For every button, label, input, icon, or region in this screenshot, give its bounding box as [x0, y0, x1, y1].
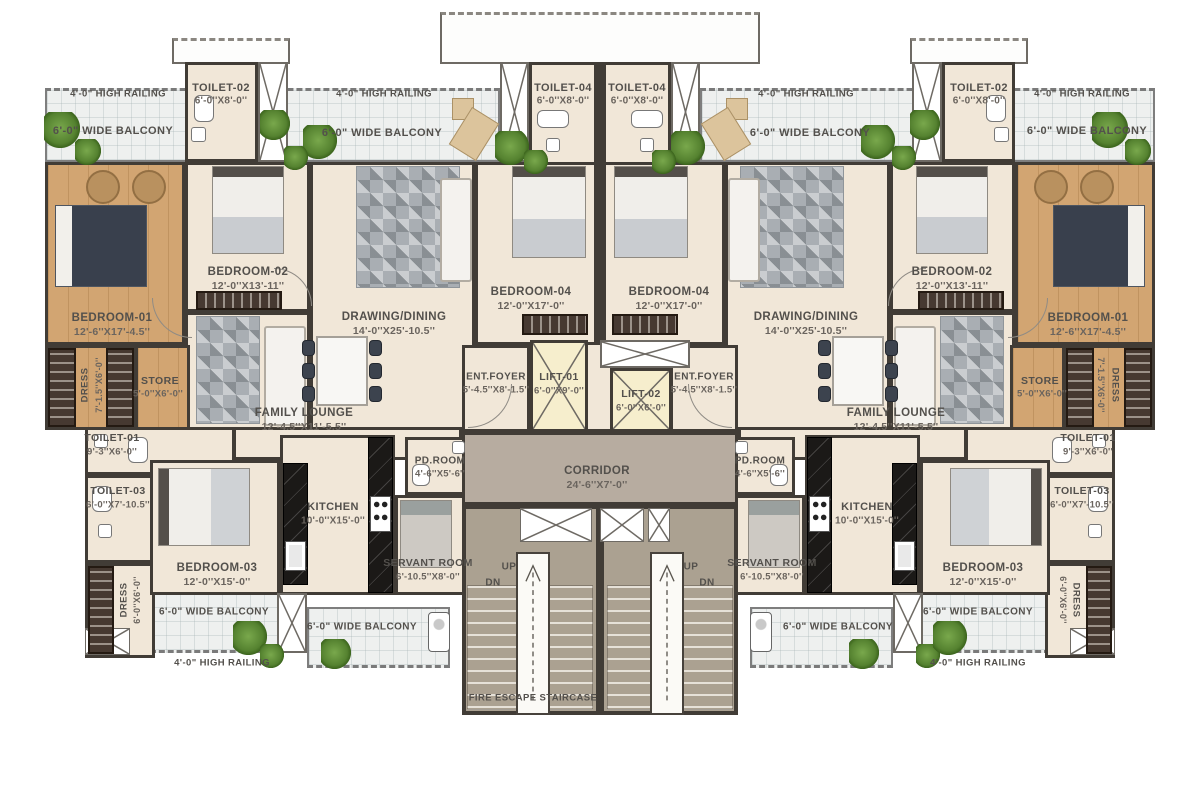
floor-plan: 4'-0" HIGH RAILING6'-0" WIDE BALCONY4'-0…: [0, 0, 1200, 788]
label-toilet-01-left-dims: 9'-3''X6'-0'': [87, 447, 137, 458]
label-railing-top-left-2: 4'-0" HIGH RAILING: [336, 89, 432, 100]
label-balcony-bottom-right-b: 6'-0" WIDE BALCONY: [783, 622, 893, 633]
label-dress-1-right-name: DRESS: [1110, 368, 1121, 403]
label-pd-room-left-dims: 4'-6''X5'-6'': [415, 469, 465, 480]
label-family-lounge-right-dims: 12'-4.5''X11'-5.5'': [854, 421, 939, 433]
label-stair-dn-left: DN: [485, 578, 500, 589]
label-stair-up-left: UP: [502, 562, 517, 573]
label-balcony-top-right-2: 6'-0" WIDE BALCONY: [750, 127, 870, 139]
label-pd-room-left-name: PD.ROOM: [415, 456, 466, 467]
label-bedroom-03-right-dims: 12'-0''X15'-0'': [949, 576, 1016, 588]
label-corridor-name: CORRIDOR: [564, 465, 630, 477]
label-servant-room-right-name: SERVANT ROOM: [727, 557, 817, 569]
label-bedroom-01-left-name: BEDROOM-01: [72, 312, 153, 324]
label-toilet-04-right-name: TOILET-04: [608, 82, 666, 94]
label-bedroom-04-left-name: BEDROOM-04: [491, 286, 572, 298]
label-servant-room-left-name: SERVANT ROOM: [383, 557, 473, 569]
label-ent-foyer-left-name: ENT.FOYER: [466, 372, 526, 383]
label-ent-foyer-left-dims: 5'-4.5''X8'-1.5'': [463, 385, 530, 396]
label-toilet-02-left-dims: 6'-0''X8'-0'': [195, 96, 247, 107]
label-toilet-04-left-name: TOILET-04: [534, 82, 592, 94]
label-stair-dn-right: DN: [699, 578, 714, 589]
label-dress-1-right-dims: 7'-1.5''X6'-0'': [1096, 357, 1106, 412]
label-lift-01-dims: 6'-0''X9'-0'': [534, 386, 584, 397]
label-balcony-top-right-1: 6'-0" WIDE BALCONY: [1027, 125, 1147, 137]
label-drawing-dining-right-dims: 14'-0''X25'-10.5'': [765, 325, 847, 337]
label-railing-bottom-right: 4'-0" HIGH RAILING: [930, 658, 1026, 669]
label-balcony-bottom-left-b: 6'-0" WIDE BALCONY: [307, 622, 417, 633]
label-lift-02-dims: 6'-0''X6'-0'': [616, 403, 666, 414]
label-toilet-04-right-dims: 6'-0''X8'-0'': [611, 96, 663, 107]
label-lift-02-name: LIFT-02: [621, 388, 661, 400]
label-servant-room-right-dims: 6'-10.5''X8'-0'': [740, 572, 804, 583]
label-kitchen-left-dims: 10'-0''X15'-0'': [301, 516, 365, 527]
label-balcony-top-left-1: 6'-0" WIDE BALCONY: [53, 125, 173, 137]
label-bedroom-03-right-name: BEDROOM-03: [943, 562, 1024, 574]
plan-labels-layer: 4'-0" HIGH RAILING6'-0" WIDE BALCONY4'-0…: [0, 0, 1200, 788]
label-toilet-01-right-dims: 9'-3''X6'-0'': [1063, 447, 1113, 458]
label-lift-01-name: LIFT-01: [539, 371, 579, 383]
label-drawing-dining-left-name: DRAWING/DINING: [342, 311, 447, 323]
label-drawing-dining-left-dims: 14'-0''X25'-10.5'': [353, 325, 435, 337]
label-corridor-dims: 24'-6''X7'-0'': [567, 479, 628, 491]
label-bedroom-02-right-dims: 12'-0''X13'-11'': [916, 280, 988, 292]
label-kitchen-left-name: KITCHEN: [307, 501, 359, 513]
floor-plan-page: 4'-0" HIGH RAILING6'-0" WIDE BALCONY4'-0…: [0, 0, 1200, 788]
label-dress-1-left-name: DRESS: [80, 368, 91, 403]
label-family-lounge-left-name: FAMILY LOUNGE: [255, 407, 354, 419]
label-servant-room-left-dims: 6'-10.5''X8'-0'': [396, 572, 460, 583]
label-family-lounge-left-dims: 12'-4.5''X11'-5.5'': [262, 421, 347, 433]
label-family-lounge-right-name: FAMILY LOUNGE: [847, 407, 946, 419]
label-toilet-03-right-name: TOILET-03: [1054, 485, 1109, 497]
label-bedroom-02-left-name: BEDROOM-02: [208, 266, 289, 278]
label-toilet-02-left-name: TOILET-02: [192, 82, 250, 94]
label-fire-escape-staircase: FIRE ESCAPE STAIRCASE: [469, 693, 598, 704]
label-kitchen-right-name: KITCHEN: [841, 501, 893, 513]
label-toilet-03-right-dims: 6'-0''X7'-10.5'': [1050, 500, 1114, 511]
label-toilet-01-left-name: TOILET-01: [84, 432, 139, 444]
label-bedroom-03-left-name: BEDROOM-03: [177, 562, 258, 574]
label-pd-room-right-dims: 4'-6''X5'-6'': [735, 469, 785, 480]
label-bedroom-03-left-dims: 12'-0''X15'-0'': [183, 576, 250, 588]
label-toilet-02-right-name: TOILET-02: [950, 82, 1008, 94]
label-pd-room-right-name: PD.ROOM: [735, 456, 786, 467]
label-toilet-04-left-dims: 6'-0''X8'-0'': [537, 96, 589, 107]
label-railing-top-right-1: 4'-0" HIGH RAILING: [1034, 89, 1130, 100]
label-stair-up-right: UP: [684, 562, 699, 573]
label-balcony-top-left-2: 6'-0" WIDE BALCONY: [322, 127, 442, 139]
label-bedroom-01-left-dims: 12'-6''X17'-4.5'': [74, 326, 150, 338]
label-bedroom-02-left-dims: 12'-0''X13'-11'': [212, 280, 284, 292]
label-kitchen-right-dims: 10'-0''X15'-0'': [835, 516, 899, 527]
label-ent-foyer-right-name: ENT.FOYER: [674, 372, 734, 383]
label-dress-1-left-dims: 7'-1.5''X6'-0'': [94, 357, 104, 412]
label-dress-2-right-name: DRESS: [1071, 583, 1082, 618]
label-store-left-name: STORE: [141, 375, 179, 387]
label-drawing-dining-right-name: DRAWING/DINING: [754, 311, 859, 323]
label-railing-top-right-2: 4'-0" HIGH RAILING: [758, 89, 854, 100]
label-store-right-dims: 5'-0''X6'-0'': [1017, 389, 1067, 400]
label-railing-bottom-left: 4'-0" HIGH RAILING: [174, 658, 270, 669]
label-bedroom-01-right-name: BEDROOM-01: [1048, 312, 1129, 324]
label-dress-2-right-dims: 6'-0''X6'-0'': [1058, 576, 1068, 623]
label-balcony-bottom-left-a: 6'-0" WIDE BALCONY: [159, 607, 269, 618]
label-bedroom-04-left-dims: 12'-0''X17'-0'': [497, 300, 564, 312]
label-balcony-bottom-right-a: 6'-0" WIDE BALCONY: [923, 607, 1033, 618]
label-dress-2-left-dims: 6'-0''X6'-0'': [132, 576, 142, 623]
label-toilet-02-right-dims: 6'-0''X8'-0'': [953, 96, 1005, 107]
label-ent-foyer-right-dims: 5'-4.5''X8'-1.5'': [671, 385, 738, 396]
label-toilet-03-left-dims: 6'-0''X7'-10.5'': [86, 500, 150, 511]
label-store-left-dims: 5'-0''X6'-0'': [133, 389, 183, 400]
label-bedroom-02-right-name: BEDROOM-02: [912, 266, 993, 278]
label-toilet-03-left-name: TOILET-03: [90, 485, 145, 497]
label-bedroom-01-right-dims: 12'-6''X17'-4.5'': [1050, 326, 1126, 338]
label-store-right-name: STORE: [1021, 375, 1059, 387]
label-dress-2-left-name: DRESS: [119, 583, 130, 618]
label-bedroom-04-right-dims: 12'-0''X17'-0'': [635, 300, 702, 312]
label-railing-top-left-1: 4'-0" HIGH RAILING: [70, 89, 166, 100]
label-toilet-01-right-name: TOILET-01: [1060, 432, 1115, 444]
label-bedroom-04-right-name: BEDROOM-04: [629, 286, 710, 298]
